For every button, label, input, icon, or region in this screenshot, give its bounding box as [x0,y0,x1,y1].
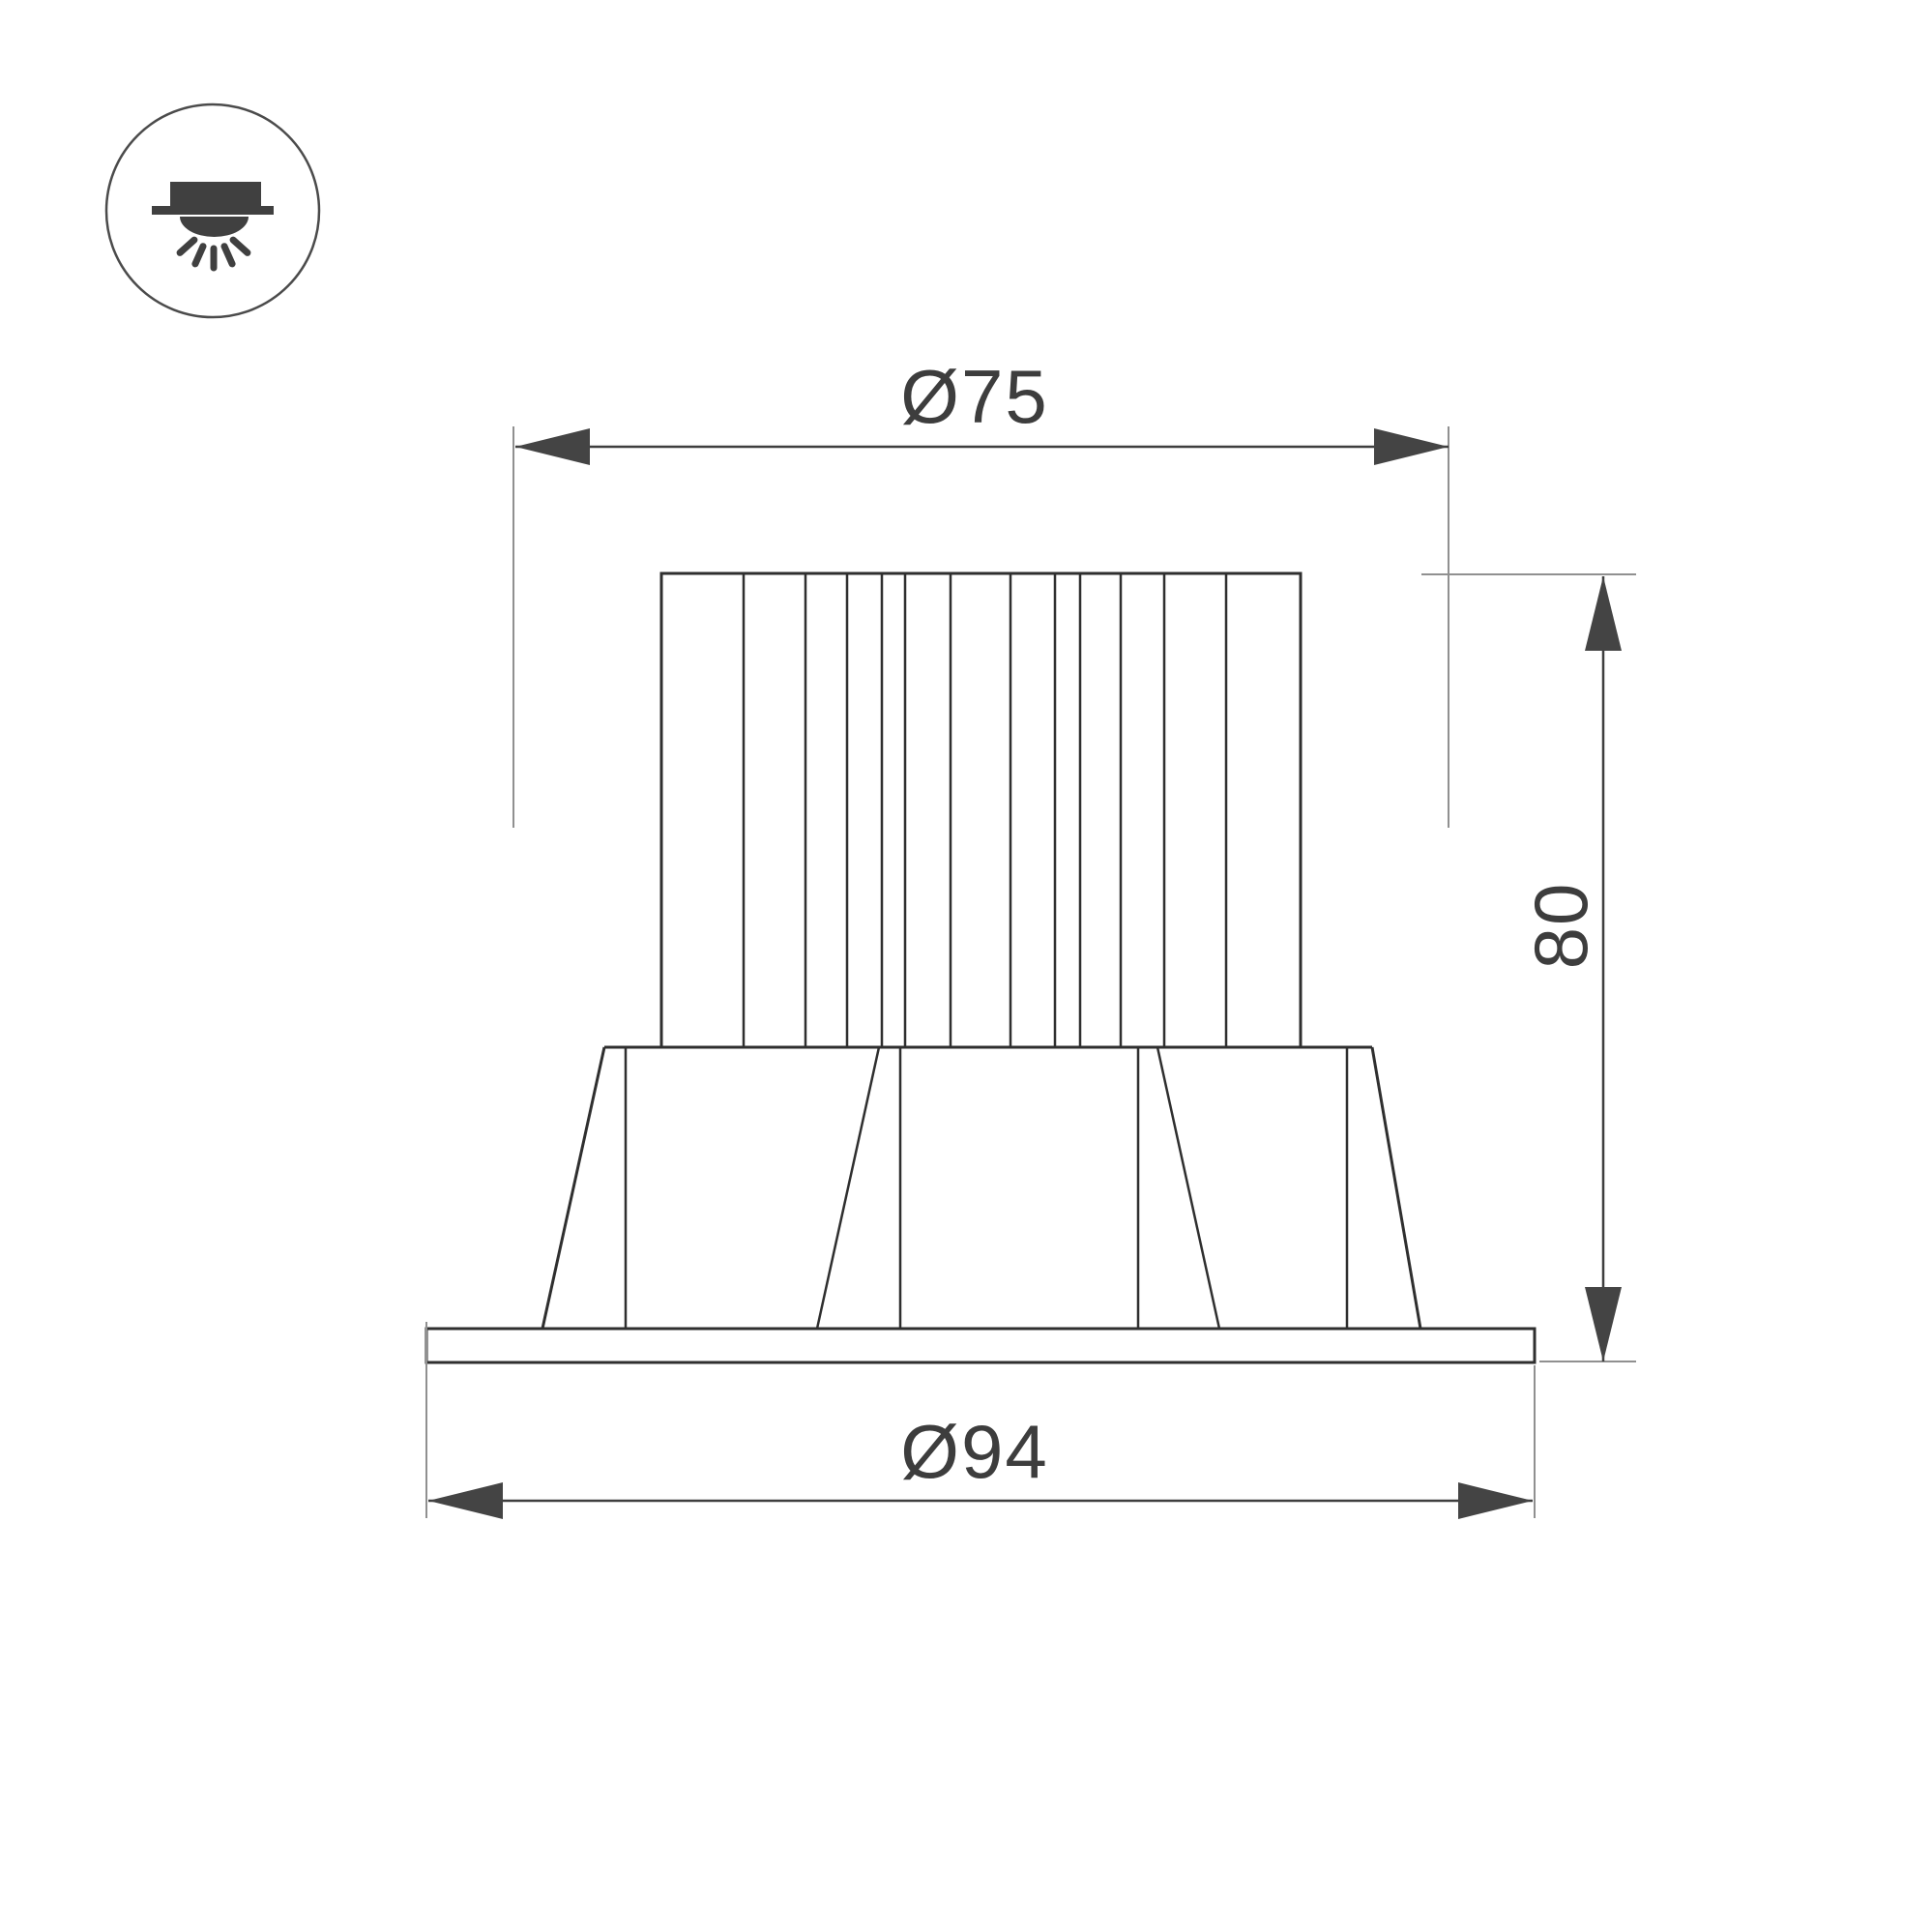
heatsink-outline [661,573,1301,1047]
icon-lamp-housing [170,182,261,209]
dimension-arrowhead [1585,576,1622,651]
lamp-body-outline [542,1047,1420,1329]
body-seam-line [1157,1047,1219,1329]
icon-ceiling-flange [152,206,274,215]
icon-light-rays [180,240,248,268]
dimension-lines [428,447,1603,1501]
recessed-downlight-icon [106,104,319,317]
luminaire-side-view [426,573,1535,1362]
downlight-dimension-drawing: Ø75 80 Ø94 [0,0,1932,1932]
top-diameter-label: Ø75 [900,354,1048,439]
body-outline-line [542,1047,604,1329]
dimension-annotations: Ø75 80 Ø94 [426,354,1636,1519]
lamp-body-seams [626,1047,1347,1329]
body-seam-line [817,1047,879,1329]
body-outline-line [1372,1047,1420,1329]
dimension-arrowhead [1458,1482,1533,1519]
height-label: 80 [1518,882,1603,970]
dimension-arrowhead [1585,1287,1622,1361]
icon-diffuser-dome [180,217,249,237]
bottom-diameter-label: Ø94 [900,1409,1048,1494]
dimension-arrowheads [428,428,1622,1519]
trim-flange [426,1329,1535,1362]
extension-lines [426,426,1636,1518]
dimension-arrowhead [1374,428,1449,465]
dimension-arrowhead [515,428,590,465]
heatsink-fins [744,573,1226,1047]
dimension-arrowhead [428,1482,503,1519]
